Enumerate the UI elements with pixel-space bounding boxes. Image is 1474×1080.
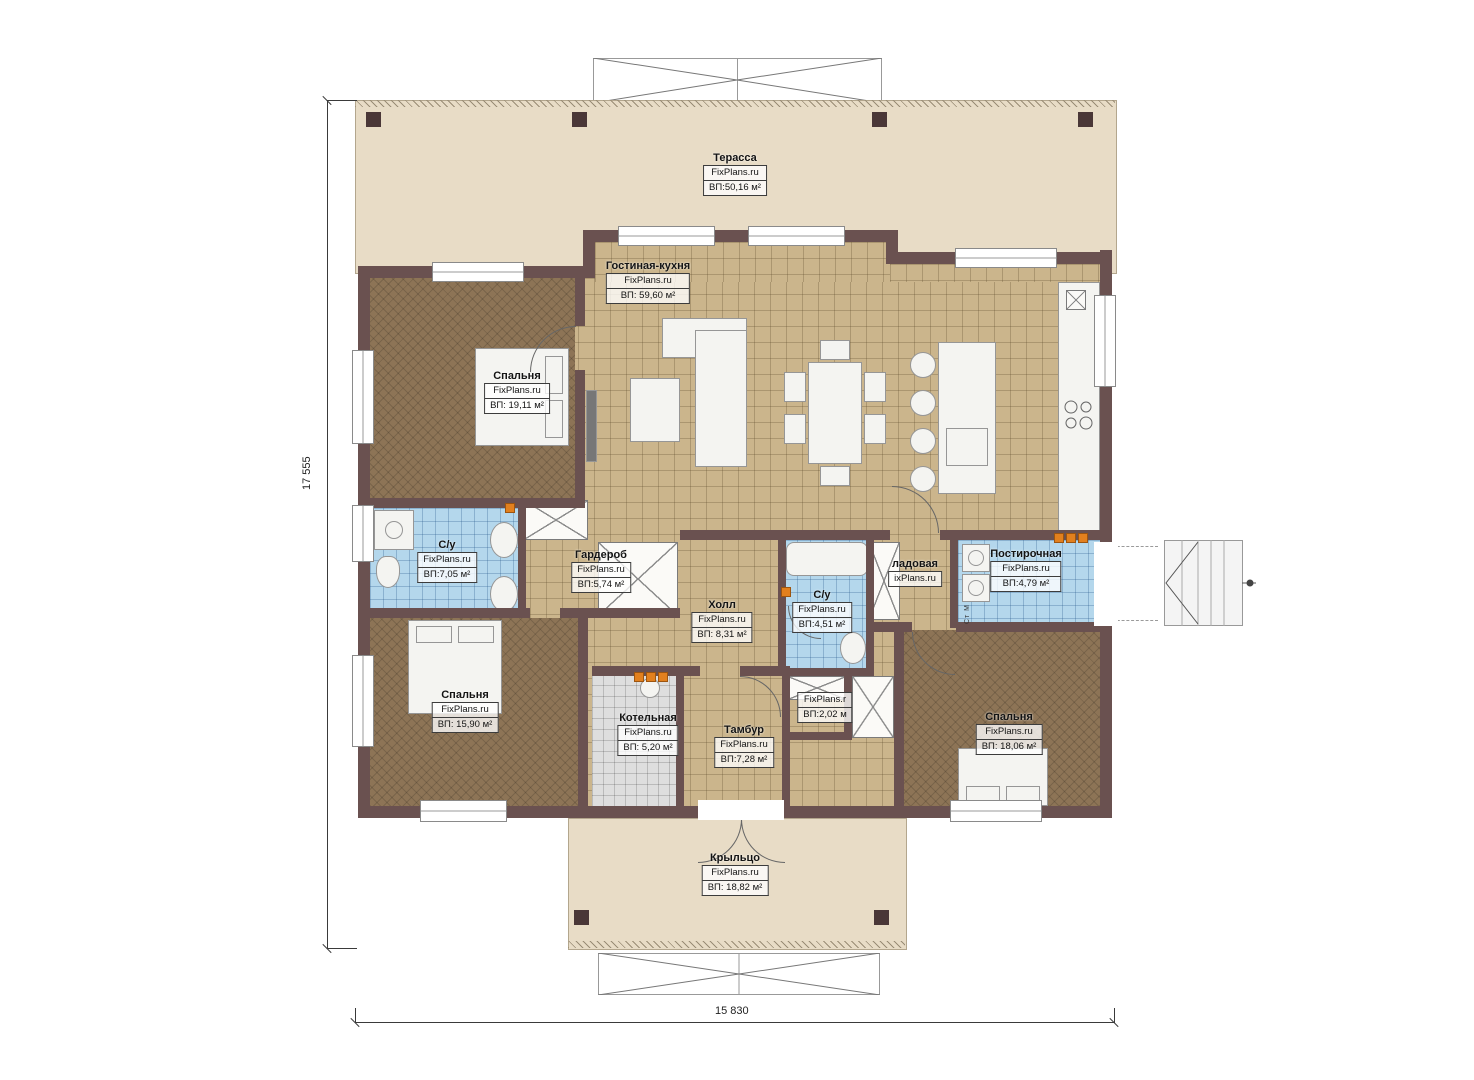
room-label-bedroom-3: Спальня FixPlans.ru ВП: 18,06 м² (976, 711, 1043, 755)
porch-post (574, 910, 589, 925)
room-label-living-kitchen: Гостиная-кухня FixPlans.ru ВП: 59,60 м² (606, 260, 690, 304)
room-name: Спальня (976, 711, 1043, 723)
room-label-laundry: Постирочная FixPlans.ru ВП:4,79 м² (990, 548, 1061, 592)
marker-dot (505, 503, 515, 513)
window (352, 350, 374, 444)
wall-segment (578, 618, 588, 806)
room-name: Тамбур (714, 724, 774, 736)
marker-dot (1066, 533, 1076, 543)
watermark: FixPlans.ru (432, 702, 499, 718)
coffee-table (630, 378, 680, 442)
room-area: ВП:4,51 м² (792, 618, 852, 633)
room-area: ВП:5,74 м² (571, 578, 631, 593)
wall-segment (950, 540, 958, 628)
room-name: Котельная (617, 712, 678, 724)
kitchen-sink-icon (1066, 290, 1086, 310)
watermark: FixPlans.ru (606, 273, 690, 289)
dimension-extension (355, 1008, 356, 1022)
room-name: Гардероб (571, 549, 631, 561)
window (432, 262, 524, 282)
dining-table (808, 362, 862, 464)
room-area: ВП: 59,60 м² (606, 289, 690, 304)
room-label-hall: Холл FixPlans.ru ВП: 8,31 м² (691, 599, 752, 643)
window (420, 800, 507, 822)
room-area: ВП: 5,20 м² (617, 741, 678, 756)
window (1094, 295, 1116, 387)
wall-segment (560, 608, 680, 618)
closet-symbol (852, 676, 894, 738)
room-area: ВП:4,79 м² (990, 577, 1061, 592)
room-label-pantry: ладовая ixPlans.ru (888, 558, 942, 587)
wall-segment (778, 540, 786, 676)
wall-segment (575, 266, 585, 326)
bathtub (786, 542, 868, 576)
tv-unit (586, 390, 597, 462)
wash-basin (490, 576, 518, 612)
dining-chair (784, 372, 806, 402)
dining-chair (820, 466, 850, 486)
room-name: Крыльцо (702, 852, 769, 864)
porch-edge-hatch (568, 941, 905, 948)
bar-stool (910, 352, 936, 378)
window (352, 655, 374, 747)
room-name: Спальня (432, 689, 499, 701)
steps-extension-line (1112, 546, 1158, 547)
pillow (458, 626, 494, 643)
watermark: FixPlans.r (797, 692, 852, 708)
room-label-bathroom-2: С/у FixPlans.ru ВП:4,51 м² (792, 589, 852, 633)
wall-segment (782, 732, 852, 740)
terrace-edge-hatch (355, 100, 1115, 107)
steps-extension-line (1112, 620, 1158, 621)
watermark: FixPlans.ru (792, 602, 852, 618)
watermark: ixPlans.ru (888, 571, 942, 587)
watermark: FixPlans.ru (702, 865, 769, 881)
side-steps (1156, 540, 1256, 626)
porch-post (874, 910, 889, 925)
room-name: ладовая (888, 558, 942, 570)
room-label-bedroom-1: Спальня FixPlans.ru ВП: 19,11 м² (484, 370, 550, 414)
room-name: Терасса (703, 152, 767, 164)
watermark: FixPlans.ru (571, 562, 631, 578)
marker-dot (658, 672, 668, 682)
room-label-storage: FixPlans.r ВП:2,02 м (797, 692, 852, 723)
dimension-extension (327, 948, 357, 949)
sofa (695, 330, 747, 467)
dimension-height-label: 17 555 (301, 456, 313, 490)
wall-segment (518, 508, 526, 614)
watermark: FixPlans.ru (976, 724, 1043, 740)
room-name: Холл (691, 599, 752, 611)
watermark: FixPlans.ru (617, 725, 678, 741)
room-name: С/у (792, 589, 852, 601)
room-area: ВП:50,16 м² (703, 181, 767, 196)
wall-segment (894, 622, 904, 806)
cooktop-icon (1062, 398, 1094, 432)
wall-segment (874, 622, 912, 632)
dining-chair (820, 340, 850, 360)
terrace-post (572, 112, 587, 127)
watermark: FixPlans.ru (703, 165, 767, 181)
bar-stool (910, 466, 936, 492)
room-label-boiler-room: Котельная FixPlans.ru ВП: 5,20 м² (617, 712, 678, 756)
room-area: ВП: 15,90 м² (432, 718, 499, 733)
room-area: ВП: 8,31 м² (691, 628, 752, 643)
window (618, 226, 715, 246)
wash-basin (490, 522, 518, 558)
wall-segment (940, 530, 1100, 540)
entry-door-opening (698, 800, 784, 820)
window (950, 800, 1042, 822)
room-name: Спальня (484, 370, 550, 382)
marker-dot (646, 672, 656, 682)
island-sink (946, 428, 988, 466)
floor-plan: Ст М (0, 0, 1474, 1080)
room-area: ВП:7,28 м² (714, 753, 774, 768)
watermark: FixPlans.ru (691, 612, 752, 628)
room-name: С/у (417, 539, 477, 551)
room-area: ВП: 19,11 м² (484, 399, 550, 414)
marker-dot (781, 587, 791, 597)
roof-gable-bottom (598, 953, 880, 995)
room-area: ВП: 18,06 м² (976, 740, 1043, 755)
room-name: Постирочная (990, 548, 1061, 560)
room-label-vestibule: Тамбур FixPlans.ru ВП:7,28 м² (714, 724, 774, 768)
watermark: FixPlans.ru (417, 552, 477, 568)
shower-head-icon (385, 521, 403, 539)
window (352, 505, 374, 562)
room-area: ВП: 18,82 м² (702, 881, 769, 896)
dimension-extension (1114, 1008, 1115, 1022)
toilet (376, 556, 400, 588)
wall-segment (782, 674, 790, 806)
watermark: FixPlans.ru (990, 561, 1061, 577)
room-label-bedroom-2: Спальня FixPlans.ru ВП: 15,90 м² (432, 689, 499, 733)
room-area: ВП:2,02 м (797, 708, 852, 723)
room-label-terrace: Терасса FixPlans.ru ВП:50,16 м² (703, 152, 767, 196)
wall-segment (680, 530, 890, 540)
room-name: Гостиная-кухня (606, 260, 690, 272)
terrace-post (1078, 112, 1093, 127)
pillow (416, 626, 452, 643)
washing-machine-door-icon (968, 550, 984, 566)
watermark: FixPlans.ru (714, 737, 774, 753)
dining-chair (864, 414, 886, 444)
dimension-extension (327, 100, 357, 101)
wall-segment (370, 608, 530, 618)
marker-dot (1078, 533, 1088, 543)
terrace-post (872, 112, 887, 127)
room-area: ВП:7,05 м² (417, 568, 477, 583)
dimension-width-label: 15 830 (715, 1005, 749, 1017)
wall-segment (956, 622, 1100, 632)
dining-chair (864, 372, 886, 402)
bar-stool (910, 390, 936, 416)
window (748, 226, 845, 246)
wall-segment (778, 668, 874, 676)
room-label-wardrobe: Гардероб FixPlans.ru ВП:5,74 м² (571, 549, 631, 593)
marker-dot (1054, 533, 1064, 543)
wall-segment (575, 370, 585, 508)
dimension-line-horizontal (355, 1022, 1115, 1023)
kitchen-island (938, 342, 996, 494)
side-door-opening (1094, 542, 1118, 626)
room-label-bathroom-1: С/у FixPlans.ru ВП:7,05 м² (417, 539, 477, 583)
bar-stool (910, 428, 936, 454)
terrace-post (366, 112, 381, 127)
room-label-porch: Крыльцо FixPlans.ru ВП: 18,82 м² (702, 852, 769, 896)
dimension-line-vertical (327, 100, 328, 948)
wash-basin (840, 632, 866, 664)
wall-segment (866, 540, 874, 676)
dryer-door-icon (968, 580, 984, 596)
marker-dot (634, 672, 644, 682)
watermark: FixPlans.ru (484, 383, 550, 399)
wall-segment (358, 498, 585, 508)
roof-gable-top (593, 58, 882, 103)
appliance-label: Ст М (964, 604, 971, 624)
window (955, 248, 1057, 268)
dining-chair (784, 414, 806, 444)
